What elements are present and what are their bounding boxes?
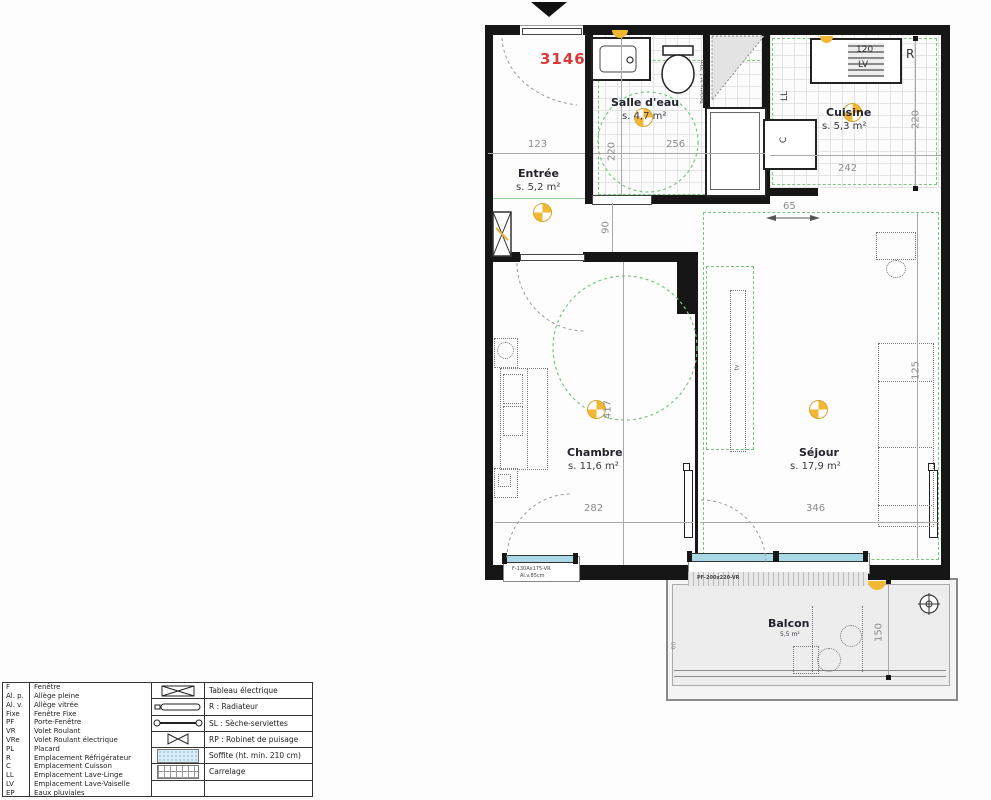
legend-label: Volet Roulant électrique bbox=[29, 736, 151, 745]
cooktop bbox=[763, 119, 817, 170]
legend-row: Tableau électrique bbox=[152, 683, 312, 699]
dim-node bbox=[886, 675, 891, 680]
legend-abbr: VR bbox=[3, 727, 29, 735]
stool bbox=[497, 342, 514, 359]
legend-abbr: C bbox=[3, 762, 29, 770]
legend-row: FixeFenêtre Fixe bbox=[3, 709, 151, 718]
chambre-window-arc bbox=[507, 494, 571, 558]
room-area-cuisine: s. 5,3 m² bbox=[822, 121, 866, 132]
chair bbox=[886, 260, 906, 278]
legend-abbr: EP bbox=[3, 789, 29, 797]
legend-label: Emplacement Cuisson bbox=[29, 762, 151, 771]
legend-abbr: LL bbox=[3, 771, 29, 779]
washing-machine-label: LL bbox=[780, 81, 790, 111]
dim-line bbox=[888, 582, 889, 680]
bed-line bbox=[527, 368, 528, 468]
dim-346: 346 bbox=[806, 503, 825, 514]
legend-label: Eaux pluviales bbox=[29, 788, 151, 797]
legend-row: SL : Sèche-serviettes bbox=[152, 716, 312, 732]
sofa bbox=[878, 343, 934, 527]
dim-123: 123 bbox=[528, 139, 547, 150]
dim-60: 60 bbox=[671, 631, 678, 661]
dim-220-sde: 220 bbox=[607, 137, 618, 167]
legend-row: PLPlacard bbox=[3, 744, 151, 753]
room-name-cuisine: Cuisine bbox=[826, 106, 871, 119]
dim-line bbox=[700, 522, 938, 523]
radiator-icon bbox=[152, 699, 204, 714]
legend-abbr: Fixe bbox=[3, 710, 29, 718]
lamp bbox=[498, 474, 511, 487]
legend-label: Allège vitrée bbox=[29, 701, 151, 710]
legend-label: Soffite (ht. min. 210 cm) bbox=[204, 748, 312, 763]
legend-abbr: Al. v. bbox=[3, 701, 29, 709]
legend-symbols-table: Tableau électrique R : Radiateur SL : Sè… bbox=[151, 682, 313, 797]
legend-row: VRVolet Roulant bbox=[3, 727, 151, 736]
legend-row: Soffite (ht. min. 210 cm) bbox=[152, 748, 312, 764]
pillow bbox=[503, 374, 523, 404]
plan-linework bbox=[0, 0, 991, 800]
shelf-label: Tablette ht.1,20m bbox=[700, 52, 706, 112]
dim-90: 90 bbox=[601, 213, 612, 243]
room-area-salle-deau: s. 4,7 m² bbox=[622, 111, 666, 122]
floor-plan: F-130Ax175-VR Al.v.85cm PF-200x220-VR bbox=[0, 0, 991, 800]
sofa-seam bbox=[878, 447, 932, 448]
desk bbox=[876, 232, 916, 260]
room-name-balcon: Balcon bbox=[768, 617, 810, 630]
legend-label: Carrelage bbox=[204, 764, 312, 779]
radiator-cap bbox=[683, 463, 690, 471]
dim-line bbox=[495, 522, 693, 523]
sofa-seam bbox=[878, 505, 932, 506]
legend-row: Carrelage bbox=[152, 764, 312, 780]
legend-label: Fenêtre bbox=[29, 683, 151, 692]
legend-label: Placard bbox=[29, 744, 151, 753]
shower-tray-inner bbox=[710, 112, 760, 190]
bathroom-sink-basin bbox=[600, 46, 636, 72]
dim-arrow-65 bbox=[766, 215, 820, 221]
legend-row: Al. v.Allège vitrée bbox=[3, 701, 151, 710]
room-area-balcon: 5,5 m² bbox=[780, 631, 800, 638]
towel-dryer-icon bbox=[152, 716, 204, 731]
legend-row-empty bbox=[152, 781, 312, 797]
sejour-window-arc bbox=[701, 500, 766, 564]
legend-label: Fenêtre Fixe bbox=[29, 709, 151, 718]
legend-label: Allège pleine bbox=[29, 692, 151, 701]
room-name-chambre: Chambre bbox=[567, 446, 623, 459]
toilet-icon bbox=[662, 55, 694, 93]
tile-grid-icon bbox=[152, 764, 204, 779]
soffit-triangle bbox=[712, 36, 764, 100]
electrical-panel-icon bbox=[152, 683, 204, 698]
legend-label: SL : Sèche-serviettes bbox=[204, 716, 312, 731]
dim-220-cuisine: 220 bbox=[911, 105, 922, 135]
room-area-entree: s. 5,2 m² bbox=[516, 182, 560, 193]
legend-abbr: PL bbox=[3, 745, 29, 753]
dishwasher-label: LV bbox=[858, 60, 868, 70]
legend-row: FFenêtre bbox=[3, 683, 151, 692]
entrance-door-arc bbox=[502, 38, 577, 105]
dim-150: 150 bbox=[874, 618, 885, 648]
balcony-chair bbox=[793, 646, 819, 674]
dim-242: 242 bbox=[838, 163, 857, 174]
dim-node bbox=[913, 186, 918, 191]
legend-row: LVEmplacement Lave-Vaiselle bbox=[3, 779, 151, 788]
legend-label: Emplacement Lave-Vaiselle bbox=[29, 779, 151, 788]
room-name-entree: Entrée bbox=[518, 167, 559, 180]
dim-line bbox=[488, 153, 585, 154]
ceiling-light-icon bbox=[809, 400, 828, 419]
dim-125: 125 bbox=[911, 356, 922, 386]
legend-abbr: LV bbox=[3, 780, 29, 788]
radiator-chambre bbox=[684, 470, 693, 538]
ceiling-light-icon bbox=[533, 203, 552, 222]
dim-line bbox=[623, 262, 624, 565]
balcony-table bbox=[817, 648, 841, 672]
dim-node bbox=[913, 36, 918, 41]
legend-row: LLEmplacement Lave-Linge bbox=[3, 771, 151, 780]
legend-abbreviations-table: FFenêtre Al. p.Allège pleine Al. v.Allèg… bbox=[2, 682, 152, 797]
rp-tap-icon bbox=[918, 593, 940, 615]
pillow bbox=[503, 406, 523, 436]
legend-row: PFPorte-Fenêtre bbox=[3, 718, 151, 727]
legend-label: Tableau électrique bbox=[204, 683, 312, 698]
legend-label: Volet Roulant bbox=[29, 727, 151, 736]
dim-282: 282 bbox=[584, 503, 603, 514]
legend-row: Al. p.Allège pleine bbox=[3, 692, 151, 701]
balcony-chair bbox=[840, 625, 862, 647]
legend-row: RP : Robinet de puisage bbox=[152, 732, 312, 748]
room-area-chambre: s. 11,6 m² bbox=[568, 461, 619, 472]
legend-row: EPEaux pluviales bbox=[3, 788, 151, 797]
soffit-hatch-icon bbox=[152, 748, 204, 763]
legend-label: Emplacement Réfrigérateur bbox=[29, 753, 151, 762]
legend-abbr: PF bbox=[3, 718, 29, 726]
legend-row: R : Radiateur bbox=[152, 699, 312, 715]
fridge-label: R bbox=[906, 47, 914, 61]
legend-row: VReVolet Roulant électrique bbox=[3, 736, 151, 745]
dim-node bbox=[886, 579, 891, 584]
dim-65: 65 bbox=[783, 201, 796, 212]
room-area-sejour: s. 17,9 m² bbox=[790, 461, 841, 472]
toilet-tank bbox=[663, 46, 693, 55]
legend-abbr: R bbox=[3, 754, 29, 762]
legend-abbr: F bbox=[3, 683, 29, 691]
legend-abbr: VRe bbox=[3, 736, 29, 744]
lot-number: 3146 bbox=[540, 50, 586, 68]
sofa-seam bbox=[878, 381, 932, 382]
dim-line bbox=[593, 153, 765, 154]
legend-label: R : Radiateur bbox=[204, 699, 312, 714]
legend-abbr: Al. p. bbox=[3, 692, 29, 700]
legend-row: REmplacement Réfrigérateur bbox=[3, 753, 151, 762]
turning-circle bbox=[553, 276, 697, 420]
dim-417: 417 bbox=[603, 395, 614, 425]
legend-label: Porte-Fenêtre bbox=[29, 718, 151, 727]
room-name-salle-deau: Salle d'eau bbox=[611, 96, 679, 109]
cooktop-label: C bbox=[779, 125, 789, 155]
legend-label: RP : Robinet de puisage bbox=[204, 732, 312, 747]
tap-valve-icon bbox=[152, 732, 204, 747]
empty-cell bbox=[204, 781, 312, 797]
balcony-guide bbox=[812, 606, 813, 672]
tv-label: tv bbox=[734, 353, 741, 383]
legend-label: Emplacement Lave-Linge bbox=[29, 771, 151, 780]
dishwasher-width-label: 120 bbox=[856, 45, 873, 55]
room-name-sejour: Séjour bbox=[799, 446, 839, 459]
legend-row: CEmplacement Cuisson bbox=[3, 762, 151, 771]
dim-256: 256 bbox=[666, 139, 685, 150]
empty-cell bbox=[152, 781, 204, 797]
balcony-guide bbox=[862, 606, 863, 672]
dim-line bbox=[612, 203, 613, 252]
